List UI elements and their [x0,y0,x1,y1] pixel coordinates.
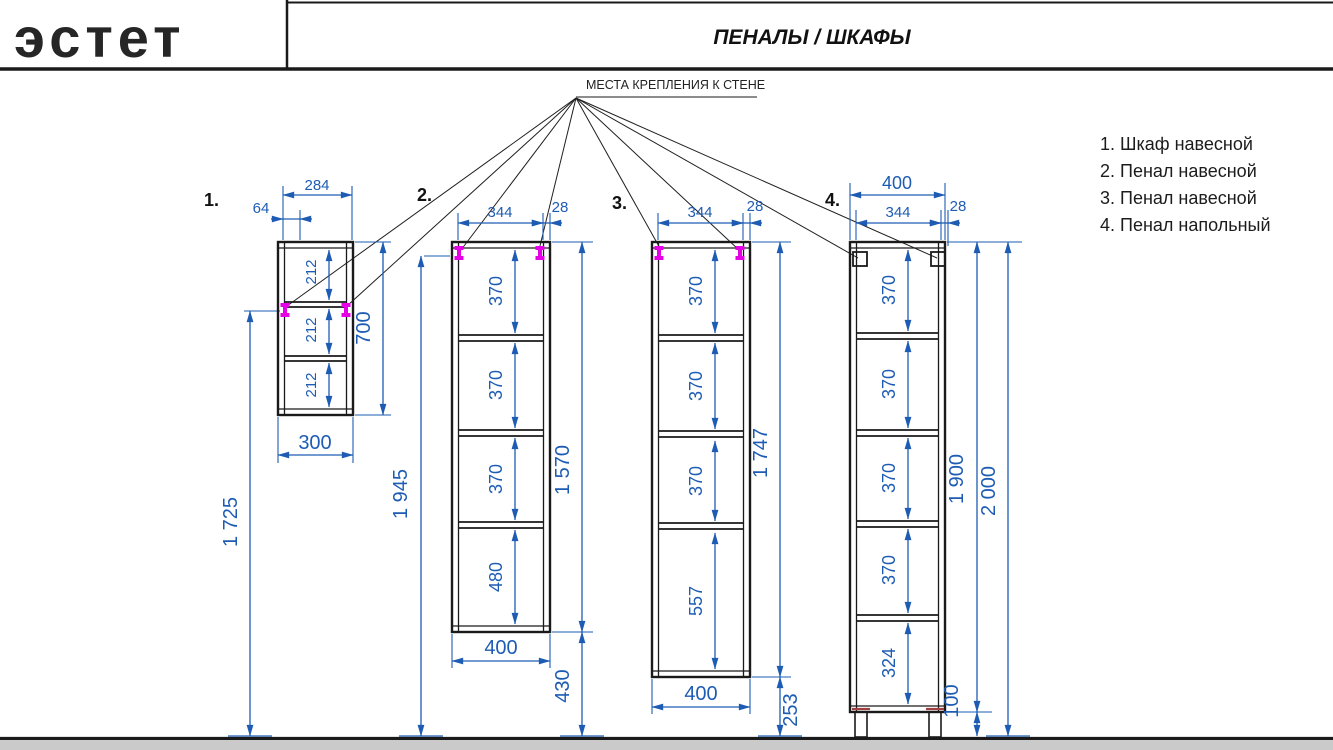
mount-bracket-icon [853,252,867,266]
dim-label: 700 [353,311,375,344]
dim-label: 370 [486,370,506,400]
cabinet-1-drawing: 1. 284 64 212 212 [204,177,391,736]
dim-label: 212 [303,317,320,342]
dim-label: 370 [486,464,506,494]
dim-label: 1 900 [946,454,968,504]
mounting-note-label: МЕСТА КРЕПЛЕНИЯ К СТЕНЕ [586,78,765,92]
cabinet-2-number: 2. [417,185,432,205]
dim-label: 100 [941,684,963,717]
dim-label: 370 [686,371,706,401]
dim-label: 64 [253,200,270,217]
legend-item-2: 2. Пенал навесной [1100,161,1257,181]
legend-item-1: 1. Шкаф навесной [1100,134,1253,154]
dim-label: 1 725 [220,497,242,547]
wall-fastener-icon [281,303,290,317]
dim-label: 344 [885,204,910,221]
dim-label: 28 [950,198,967,215]
cabinet-3-drawing: 3. 344 28 370 370 370 [612,193,802,736]
wall-fastener-icon [342,303,351,317]
dim-label: 370 [879,555,899,585]
dim-label: 400 [882,173,912,193]
dim-label: 370 [879,463,899,493]
technical-drawing: эстет ПЕНАЛЫ / ШКАФЫ МЕСТА КРЕПЛЕНИЯ К С… [0,0,1333,750]
dim-label: 557 [686,586,706,616]
cabinet-leg [929,712,941,737]
legend-item-3: 3. Пенал навесной [1100,188,1257,208]
dim-label: 1 747 [750,428,772,478]
dim-label: 400 [484,637,517,659]
dim-label: 324 [879,648,899,678]
cabinet-leg [855,712,867,737]
dim-label: 300 [298,432,331,454]
wall-fastener-icon [655,246,664,260]
page-title: ПЕНАЛЫ / ШКАФЫ [713,26,911,49]
cabinet-3-number: 3. [612,193,627,213]
dim-label: 253 [780,693,802,726]
header: эстет ПЕНАЛЫ / ШКАФЫ [0,0,1333,69]
dim-label: 370 [686,466,706,496]
dim-label: 370 [686,276,706,306]
floor-shading [0,740,1333,750]
dim-label: 28 [552,199,569,216]
dim-label: 370 [879,275,899,305]
wall-fastener-icon [455,246,464,260]
dim-label: 1 570 [552,445,574,495]
cabinet-2-drawing: 2. 344 28 370 370 [390,185,593,736]
dim-label: 480 [486,562,506,592]
cabinet-1-number: 1. [204,190,219,210]
dim-label: 344 [687,204,712,221]
dim-label: 430 [552,669,574,702]
cabinet-4-drawing: 4. [825,173,1022,737]
dim-label: 284 [304,177,329,194]
dim-label: 28 [747,198,764,215]
dim-label: 400 [684,683,717,705]
floor [0,736,1333,750]
dim-label: 344 [487,204,512,221]
dim-label: 370 [486,276,506,306]
dim-label: 2 000 [978,466,1000,516]
dim-label: 1 945 [390,469,412,519]
brand-logo: эстет [14,6,186,69]
dim-label: 212 [303,259,320,284]
dim-label: 212 [303,372,320,397]
legend-item-4: 4. Пенал напольный [1100,215,1271,235]
cabinet-4-number: 4. [825,190,840,210]
legend-list: 1. Шкаф навесной 2. Пенал навесной 3. Пе… [1100,134,1271,235]
dim-label: 370 [879,369,899,399]
catalog-page: эстет ПЕНАЛЫ / ШКАФЫ МЕСТА КРЕПЛЕНИЯ К С… [0,0,1333,750]
